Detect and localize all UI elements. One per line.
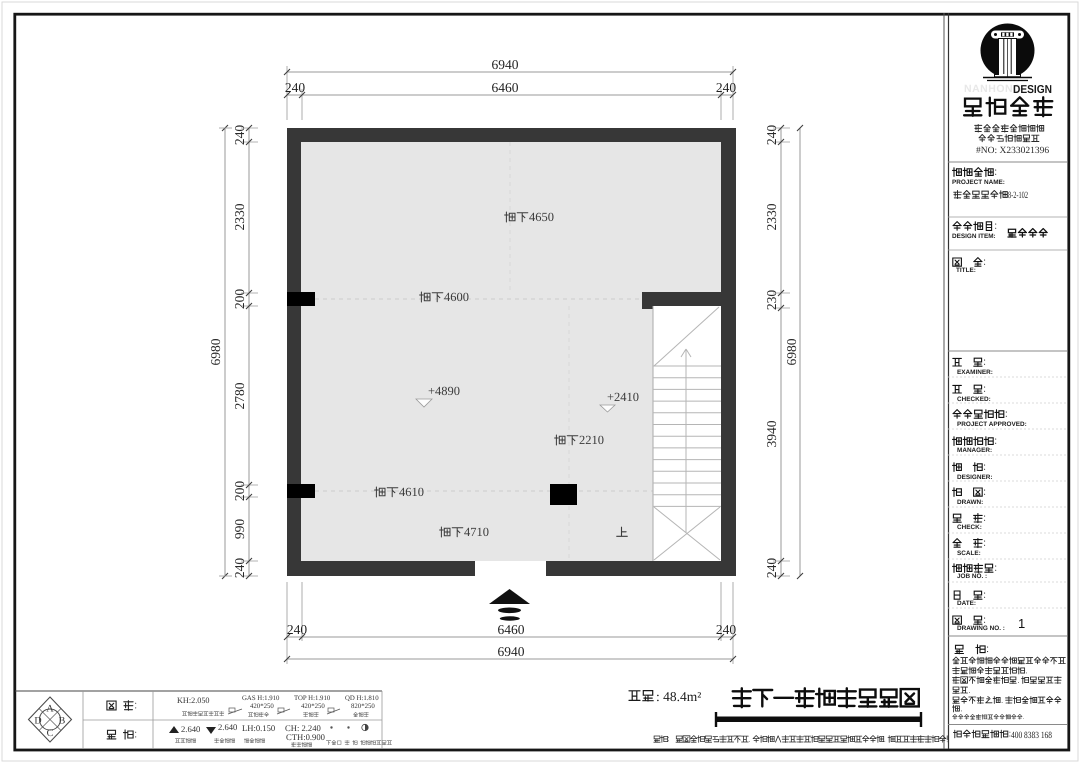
svg-text:240: 240 [287,622,308,637]
svg-text:DESIGNER:: DESIGNER: [957,474,993,481]
svg-text:6940: 6940 [492,57,519,72]
svg-text:DRAWING NO. :: DRAWING NO. : [957,625,1005,632]
svg-text:C: C [47,728,54,739]
svg-text:CHECK:: CHECK: [957,524,982,531]
svg-text:CHECKED:: CHECKED: [957,396,991,403]
svg-text:B: B [59,716,66,727]
svg-text:DESIGN: DESIGN [1013,84,1052,96]
svg-text:4610: 4610 [399,485,424,499]
svg-text:420*250: 420*250 [250,703,274,710]
svg-text:6940: 6940 [498,644,525,659]
svg-text:400 8383 168: 400 8383 168 [1011,731,1052,741]
svg-text:2210: 2210 [579,433,604,447]
svg-text:D: D [34,716,41,727]
svg-text:6980: 6980 [784,338,799,365]
svg-text:4600: 4600 [444,290,469,304]
svg-text:EXAMINER:: EXAMINER: [957,369,993,376]
svg-text:4650: 4650 [529,210,554,224]
svg-text:240: 240 [764,558,779,579]
svg-text:DESIGN ITEM:: DESIGN ITEM: [952,233,996,240]
svg-text:A: A [46,704,54,715]
svg-text:2.640: 2.640 [218,722,237,732]
svg-text:200: 200 [232,481,247,502]
svg-text:DRAWN:: DRAWN: [957,499,983,506]
svg-text:QD H:1.810: QD H:1.810 [345,695,379,702]
svg-text:990: 990 [232,519,247,540]
svg-text:#NO: X233021396: #NO: X233021396 [976,146,1049,156]
svg-text:GAS H:1.910: GAS H:1.910 [242,695,280,702]
svg-text:+2410: +2410 [607,390,639,404]
svg-text:KH:2.050: KH:2.050 [177,696,210,705]
svg-text:6460: 6460 [492,80,519,95]
svg-text:TITLE:: TITLE: [956,267,976,274]
svg-text:420*250: 420*250 [301,703,325,710]
svg-text:6460: 6460 [498,622,525,637]
svg-text:+4890: +4890 [428,384,460,398]
svg-text:8-2-102: 8-2-102 [1008,191,1028,201]
svg-text:2780: 2780 [232,382,247,409]
svg-text:240: 240 [764,125,779,146]
svg-text:240: 240 [232,125,247,146]
svg-text:2330: 2330 [764,203,779,230]
svg-text:6980: 6980 [208,338,223,365]
svg-text:230: 230 [764,290,779,311]
svg-text:JOB NO. :: JOB NO. : [957,573,987,580]
svg-text:: 48.4m²: : 48.4m² [656,689,701,704]
svg-text:2330: 2330 [232,203,247,230]
svg-text:820*250: 820*250 [351,703,375,710]
svg-text:4710: 4710 [464,525,489,539]
svg-text:PROJECT NAME:: PROJECT NAME: [952,179,1005,186]
svg-text:240: 240 [716,80,737,95]
svg-text:1: 1 [1018,616,1025,631]
svg-text:240: 240 [232,558,247,579]
svg-text:240: 240 [716,622,737,637]
svg-text:SCALE:: SCALE: [957,550,981,557]
svg-text:3940: 3940 [764,420,779,447]
svg-text:200: 200 [232,289,247,310]
svg-text:240: 240 [285,80,306,95]
svg-text:DATE:: DATE: [957,600,976,607]
svg-text:CTH:0.900: CTH:0.900 [286,732,325,742]
svg-text:TOP H:1.910: TOP H:1.910 [294,695,331,702]
svg-text:PROJECT APPROVED:: PROJECT APPROVED: [957,421,1027,428]
svg-text:2.640: 2.640 [181,724,200,734]
svg-text:MANAGER:: MANAGER: [957,447,992,454]
svg-text:LH:0.150: LH:0.150 [242,723,275,733]
